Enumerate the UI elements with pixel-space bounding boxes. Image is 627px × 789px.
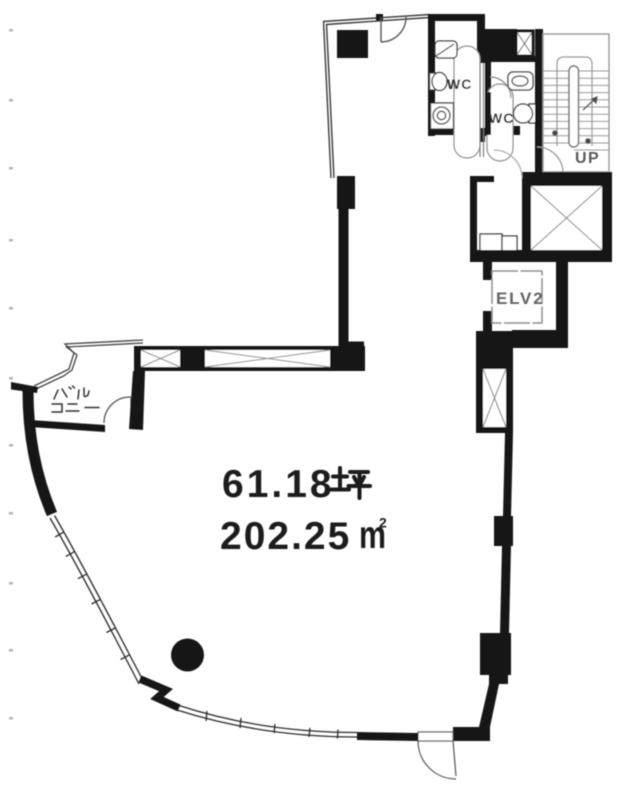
svg-text:UP: UP [575, 150, 600, 167]
svg-text:202.25: 202.25 [220, 515, 351, 558]
svg-text:WC: WC [489, 110, 514, 126]
svg-text:61.18: 61.18 [222, 463, 335, 506]
svg-text:WC: WC [447, 76, 472, 92]
svg-text:ELV2: ELV2 [496, 289, 544, 308]
svg-text:2: 2 [379, 515, 387, 531]
